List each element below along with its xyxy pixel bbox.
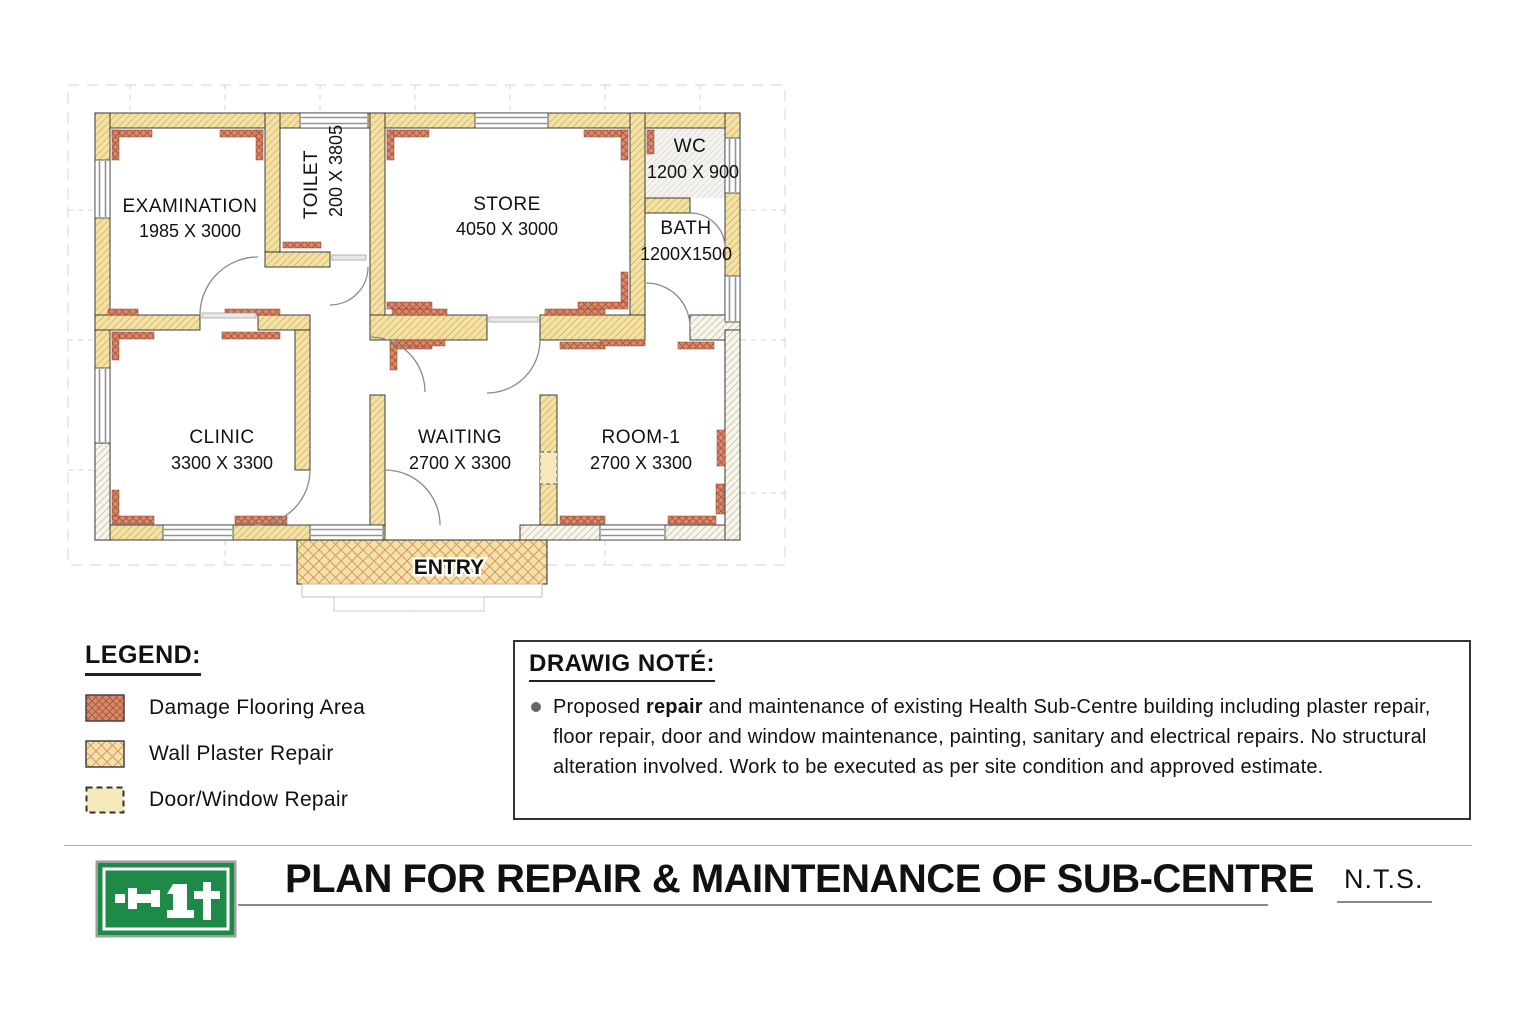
legend: LEGEND: Damage Flooring Area Wall Plaste… — [85, 641, 365, 814]
legend-item-damage-flooring: Damage Flooring Area — [85, 694, 365, 722]
room-name: TOILET — [301, 150, 322, 219]
drawing-note-title: DRAWIG NOTÉ: — [529, 650, 715, 682]
room-dims: 3300 X 3300 — [171, 453, 273, 473]
room-name: ROOM-1 — [602, 427, 681, 448]
window — [95, 160, 110, 218]
room-dims: 1200 X 900 — [647, 162, 739, 182]
window — [475, 113, 548, 128]
scale-underline — [1337, 901, 1432, 903]
legend-item-door-window: Door/Window Repair — [85, 786, 365, 814]
room-dims: 1200X1500 — [640, 244, 732, 264]
sheet-title: PLAN FOR REPAIR & MAINTENANCE OF SUB-CEN… — [285, 857, 1314, 902]
note-bold-word: repair — [646, 696, 703, 718]
scale-label: N.T.S. — [1344, 864, 1424, 895]
drawing-note-text: Proposed repair and maintenance of exist… — [553, 692, 1453, 782]
walls-plastered — [95, 113, 740, 540]
title-underline — [238, 904, 1268, 906]
window — [600, 525, 665, 540]
room-name: CLINIC — [189, 427, 254, 448]
room-dims: 2700 X 3300 — [590, 453, 692, 473]
door-window-swatch — [85, 786, 125, 814]
drawing-sheet: EXAMINATION 1985 X 3000 TOILET 200 X 380… — [0, 0, 1536, 1024]
entry-label: ENTRY — [414, 556, 484, 579]
entry-threshold — [310, 525, 383, 540]
room-dims: 200 X 3805 — [326, 125, 346, 217]
note-prefix: Proposed — [553, 696, 646, 718]
legend-item-wall-plaster: Wall Plaster Repair — [85, 740, 365, 768]
room-dims: 1985 X 3000 — [139, 221, 241, 241]
room-name: STORE — [473, 194, 541, 215]
floor-plan: EXAMINATION 1985 X 3000 TOILET 200 X 380… — [0, 0, 1536, 640]
room-name: WC — [674, 136, 707, 157]
damage-flooring-swatch — [85, 694, 125, 722]
legend-item-label: Wall Plaster Repair — [149, 742, 334, 766]
window — [95, 368, 110, 443]
room-name: BATH — [660, 218, 711, 239]
legend-item-label: Damage Flooring Area — [149, 696, 365, 720]
wall-plaster-swatch — [85, 740, 125, 768]
room-dims: 2700 X 3300 — [409, 453, 511, 473]
drawing-note-box: DRAWIG NOTÉ: Proposed repair and mainten… — [513, 640, 1471, 820]
legend-item-label: Door/Window Repair — [149, 788, 348, 812]
drawing-note-body: Proposed repair and maintenance of exist… — [529, 692, 1455, 782]
door-window-repair-marker — [540, 452, 557, 484]
separator-line — [64, 845, 1472, 846]
legend-title: LEGEND: — [85, 641, 201, 676]
window — [725, 276, 740, 322]
window — [163, 525, 233, 540]
health-centre-logo — [95, 860, 237, 938]
room-name: WAITING — [418, 427, 502, 448]
bullet-icon — [531, 702, 541, 712]
room-dims: 4050 X 3000 — [456, 219, 558, 239]
room-name: EXAMINATION — [123, 196, 258, 217]
